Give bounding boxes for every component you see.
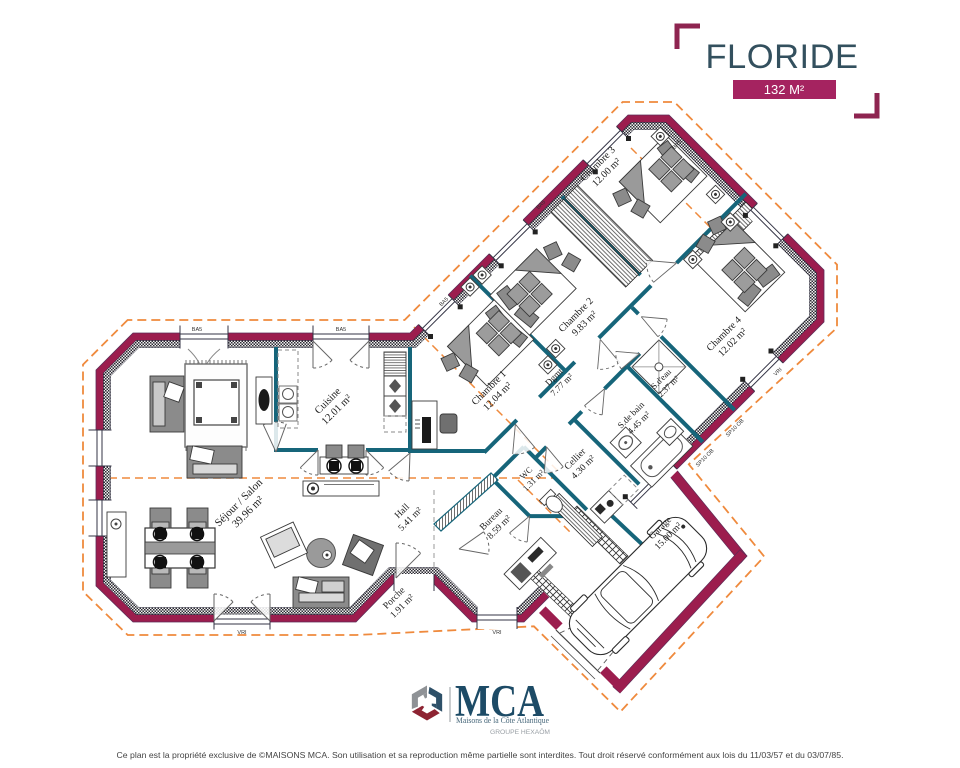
svg-text:FLORIDE: FLORIDE bbox=[705, 38, 858, 76]
svg-text:Maisons de la Côte Atlantique: Maisons de la Côte Atlantique bbox=[456, 716, 549, 725]
svg-text:BA5: BA5 bbox=[192, 327, 202, 333]
svg-text:132 M²: 132 M² bbox=[764, 82, 805, 97]
svg-text:VRI: VRI bbox=[237, 630, 247, 636]
svg-text:VRI: VRI bbox=[492, 630, 502, 636]
svg-text:BA5: BA5 bbox=[336, 327, 346, 333]
svg-text:GROUPE HEXAÔM: GROUPE HEXAÔM bbox=[490, 727, 550, 736]
svg-text:Ce plan est la propriété exclu: Ce plan est la propriété exclusive de ©M… bbox=[116, 750, 843, 760]
